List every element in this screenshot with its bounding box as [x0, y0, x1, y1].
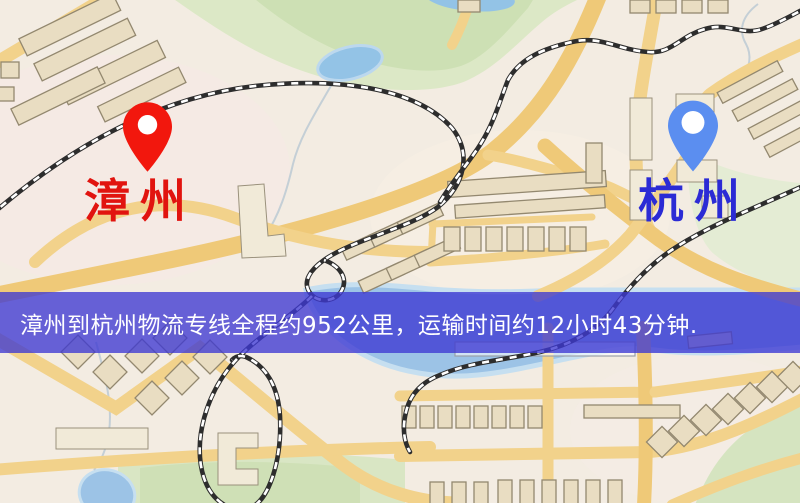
origin-pin-hole	[138, 115, 157, 134]
origin-label: 漳州	[84, 178, 196, 224]
destination-pin-hole	[682, 111, 705, 134]
map-root: 漳州 杭州 漳州到杭州物流专线全程约952公里，运输时间约12小时43分钟.	[0, 0, 800, 503]
destination-pin-icon	[668, 100, 718, 172]
destination-label: 杭州	[638, 178, 750, 224]
map-background	[0, 0, 800, 503]
origin-pin-body	[123, 102, 172, 171]
origin-pin-icon	[123, 102, 172, 172]
route-info-banner: 漳州到杭州物流专线全程约952公里，运输时间约12小时43分钟.	[0, 292, 800, 353]
route-info-text: 漳州到杭州物流专线全程约952公里，运输时间约12小时43分钟.	[20, 306, 698, 340]
